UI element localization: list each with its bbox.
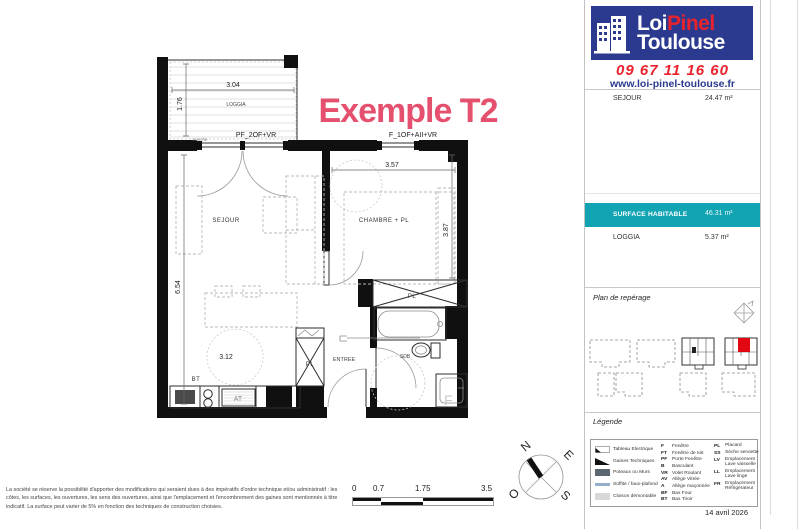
abbr-key: BT	[661, 497, 672, 502]
abbr-key: PL	[714, 443, 725, 449]
door-arcs	[197, 151, 420, 407]
surface-row-label: SEJOUR	[613, 95, 641, 102]
loggia-outline	[168, 60, 297, 140]
abbr-label: Basculant	[672, 464, 693, 469]
abbr-label: Fenêtre de toit	[672, 451, 704, 456]
logo-text: LoiPinel Toulouse	[637, 14, 725, 53]
mini-compass-icon	[734, 301, 754, 323]
surface-habitable-row: SURFACE HABITABLE 46.31 m²	[585, 203, 760, 227]
chambre-window-code: F_1OF+AII+VR	[389, 132, 437, 139]
legend-abbr-row: AAllège maçonnée	[661, 483, 710, 490]
disclaimer-text: La société se réserve la possibilité d'a…	[6, 486, 342, 511]
loggia-deck-hatch	[170, 62, 296, 139]
sink-icon	[175, 390, 195, 404]
sdb-label: SDB	[400, 354, 411, 360]
kitchen-at-label: AT	[234, 396, 243, 403]
abbr-label: Allège Vitrée	[672, 477, 700, 482]
legend-abbr-row: FTFenêtre de toit	[661, 450, 710, 457]
abbr-label: Placard	[725, 443, 759, 449]
building-plan-highlight	[725, 338, 757, 369]
abbr-label: Emplacement Lave linge	[725, 469, 759, 480]
compass-rose: N E O S	[500, 440, 585, 525]
sdb-f-label: F	[444, 392, 453, 408]
hob-burner-icon	[204, 399, 212, 407]
divider	[585, 89, 760, 90]
dim-chambre-w: 3.57	[385, 162, 399, 169]
abbr-key: VR	[661, 471, 672, 476]
abbr-key: PF	[661, 457, 672, 462]
surface-habitable-label: SURFACE HABITABLE	[613, 211, 687, 218]
legend-abbr-col1: FFenêtre FTFenêtre de toit PFPorte Fenêt…	[661, 443, 710, 503]
sheet-edge	[770, 0, 771, 515]
legend-abbr-row: BFBas Four	[661, 490, 710, 497]
abbr-key: SS	[714, 450, 725, 456]
hob-burner-icon	[204, 390, 212, 398]
logo-word-toulouse: Toulouse	[637, 33, 725, 52]
plan-sheet: PL PL F	[0, 0, 800, 529]
surface-row-value: 5.37 m²	[705, 234, 729, 241]
legend-abbr-row: LVEmplacement Lave vaisselle	[714, 457, 759, 468]
abbr-key: F	[661, 444, 672, 449]
compass-o: O	[506, 486, 523, 502]
dim-sejour-w: 3.12	[219, 354, 233, 361]
compass-needle	[529, 459, 541, 477]
abbr-key: A	[661, 484, 672, 489]
legend-box: Tableau Electrique Gaines Techniques Pot…	[590, 439, 758, 507]
scale-bar-frame	[352, 497, 494, 506]
legend-abbr-col2: PLPlacard SSSèche serviette LVEmplacemen…	[714, 443, 759, 492]
legend-abbr-row: BTBas Tiroir	[661, 497, 710, 504]
abbr-key: B	[661, 464, 672, 469]
compass-e: E	[561, 447, 577, 463]
legend-material-label: Tableau Electrique	[613, 447, 653, 452]
oven-icon: AT	[222, 389, 255, 406]
abbr-label: Sèche serviette	[725, 450, 759, 456]
furniture	[176, 176, 455, 327]
legend-abbr-row: BBasculant	[661, 463, 710, 470]
loggia-label: LOGGIA	[226, 102, 246, 108]
abbr-label: Bas Tiroir	[672, 497, 693, 502]
closet-chambre-label: PL	[408, 294, 417, 300]
closet-entree-label: PL	[306, 362, 315, 368]
abbr-label: Porte Fenêtre	[672, 457, 702, 462]
logo: LoiPinel Toulouse	[591, 6, 753, 60]
abbr-key: FR	[714, 481, 725, 492]
marche-label: marche	[192, 137, 208, 142]
legend-material-row: Soffite / faux-plafond	[595, 479, 658, 491]
legend-abbr-row: FFenêtre	[661, 443, 710, 450]
legend-material-label: Soffite / faux-plafond	[613, 482, 658, 487]
legend-title: Légende	[593, 417, 622, 426]
surface-row-label: LOGGIA	[613, 234, 640, 241]
abbr-label: Bas Four	[672, 491, 692, 496]
highlighted-unit	[738, 338, 750, 352]
legend-material-row: Tableau Electrique	[595, 444, 658, 456]
loggia-door-code: PF_2OF+VR	[236, 132, 276, 139]
abbr-key: LL	[714, 469, 725, 480]
scale-tick-35: 3.5	[481, 484, 492, 493]
entree-label: ENTREE	[333, 357, 356, 363]
legend-material-row: Gaines Techniques	[595, 456, 658, 468]
surface-row-value: 24.47 m²	[705, 95, 733, 102]
abbr-key: LV	[714, 457, 725, 468]
legend-abbr-row: PLPlacard	[714, 443, 759, 449]
chambre-label: CHAMBRE + PL	[359, 218, 409, 224]
dim-sejour-h: 6.54	[175, 280, 182, 294]
legend-abbr-row: LLEmplacement Lave linge	[714, 469, 759, 480]
kitchen-bt-label: BT	[192, 377, 201, 383]
legend-material-label: Cloison démontable	[613, 494, 656, 499]
dim-loggia-h: 1.76	[177, 97, 184, 111]
scale-bar: 0 0.7 1.75 3.5	[345, 484, 505, 510]
legend-materials: Tableau Electrique Gaines Techniques Pot…	[595, 444, 658, 502]
abbr-key: FT	[661, 451, 672, 456]
scale-tick-07: 0.7	[373, 484, 384, 493]
reperage-map	[585, 300, 760, 405]
legend-abbr-row: SSSèche serviette	[714, 450, 759, 456]
legend-abbr-row: PFPorte Fenêtre	[661, 456, 710, 463]
poteaux-murs-swatch-icon	[595, 469, 610, 476]
scale-tick-175: 1.75	[415, 484, 431, 493]
legend-material-label: Gaines Techniques	[613, 459, 655, 464]
gaines-techniques-swatch-icon	[595, 458, 610, 465]
soffite-swatch-icon	[595, 481, 610, 488]
abbr-label: Allège maçonnée	[672, 484, 710, 489]
sidebar: LoiPinel Toulouse 09 67 11 16 60 www.loi…	[584, 0, 761, 529]
abbr-key: BF	[661, 491, 672, 496]
scale-tick-0: 0	[352, 484, 356, 493]
compass-s: S	[558, 488, 573, 504]
bathtub	[374, 308, 446, 340]
plan-date: 14 avril 2026	[705, 508, 748, 517]
legend-material-label: Poteaux ou Murs	[613, 470, 650, 475]
divider	[585, 412, 760, 413]
tableau-electrique-swatch-icon	[595, 446, 610, 453]
closet-entree: PL	[296, 328, 324, 386]
surface-habitable-value: 46.31 m²	[705, 210, 733, 217]
legend-material-row: Poteaux ou Murs	[595, 467, 658, 479]
abbr-label: Volet Roulant	[672, 471, 701, 476]
abbr-key: AV	[661, 477, 672, 482]
sheet-edge	[797, 0, 798, 529]
legend-abbr-row: VRVolet Roulant	[661, 470, 710, 477]
divider	[585, 287, 760, 288]
phone-number: 09 67 11 16 60	[585, 62, 760, 79]
plan-title: Exemple T2	[319, 92, 498, 130]
legend-material-row: Cloison démontable	[595, 490, 658, 502]
divider	[585, 193, 760, 194]
building-icon	[591, 11, 633, 55]
abbr-label: Fenêtre	[672, 444, 689, 449]
toilet	[412, 343, 440, 358]
abbr-label: Emplacement Lave vaisselle	[725, 457, 759, 468]
legend-abbr-row: FREmplacement Réfrigérateur	[714, 481, 759, 492]
floorplan-drawing: PL PL F	[0, 0, 584, 480]
dim-loggia-w: 3.04	[226, 82, 240, 89]
legend-abbr-row: AVAllège Vitrée	[661, 476, 710, 483]
abbr-label: Emplacement Réfrigérateur	[725, 481, 759, 492]
cloison-swatch-icon	[595, 493, 610, 500]
compass-n: N	[518, 440, 534, 454]
building-plan-solid	[682, 338, 714, 369]
sejour-label: SEJOUR	[212, 218, 240, 224]
dim-chambre-h: 3.87	[443, 223, 450, 237]
